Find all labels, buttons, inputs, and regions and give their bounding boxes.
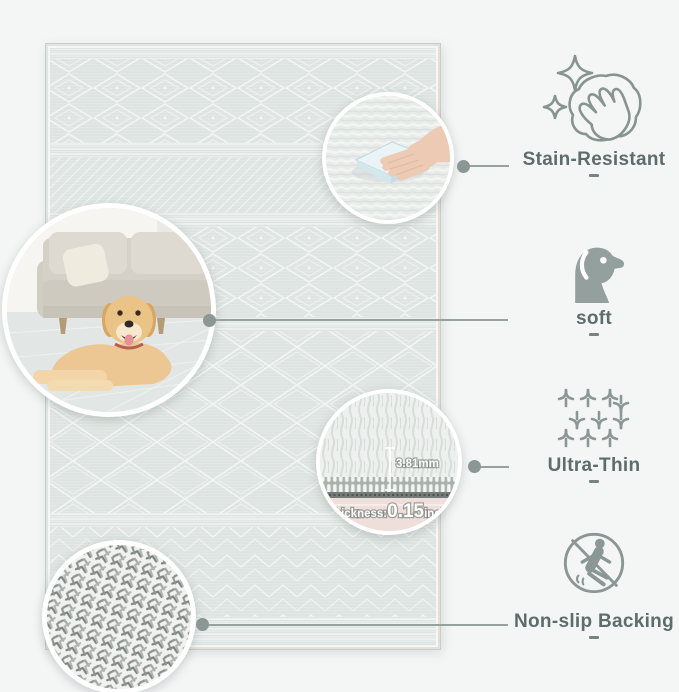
feature-nonslip-backing: Non-slip Backing bbox=[504, 529, 679, 639]
connector-dot-ultra-thin bbox=[468, 460, 481, 473]
feature-label-soft: soft bbox=[576, 309, 612, 336]
feature-label-ultra-thin: Ultra-Thin bbox=[548, 456, 641, 483]
no-slipping-person-icon bbox=[560, 529, 628, 597]
connector-line-stain bbox=[469, 165, 509, 167]
connector-dot-nonslip bbox=[196, 618, 209, 631]
sparkle-clean-hand-icon bbox=[542, 48, 646, 148]
feature-label-nonslip-backing: Non-slip Backing bbox=[514, 612, 674, 639]
connector-line-ultra-thin bbox=[480, 466, 509, 468]
label-underscore bbox=[589, 636, 599, 639]
feature-label-stain-resistant: Stain-Resistant bbox=[523, 150, 666, 177]
connector-line-nonslip bbox=[209, 624, 508, 626]
thickness-photo: 3.81mm thickness:0.15inch bbox=[316, 389, 462, 535]
label-underscore bbox=[589, 333, 599, 336]
connector-dot-soft bbox=[203, 314, 216, 327]
pile-height-text: 3.81mm bbox=[396, 458, 439, 470]
stain-wipe-photo bbox=[322, 92, 454, 224]
connector-dot-stain bbox=[457, 160, 470, 173]
woven-fabric-icon bbox=[550, 388, 638, 450]
label-underscore bbox=[589, 174, 599, 177]
feature-stain-resistant: Stain-Resistant bbox=[504, 48, 679, 177]
feature-ultra-thin: Ultra-Thin bbox=[504, 388, 679, 483]
feature-soft: soft bbox=[504, 241, 679, 336]
product-feature-image: 3.81mm thickness:0.15inch bbox=[0, 0, 679, 692]
dog-icon bbox=[558, 241, 630, 303]
backing-texture-photo bbox=[42, 540, 196, 692]
label-underscore bbox=[589, 480, 599, 483]
connector-line-soft bbox=[215, 319, 508, 321]
living-room-dog-photo bbox=[2, 203, 216, 417]
